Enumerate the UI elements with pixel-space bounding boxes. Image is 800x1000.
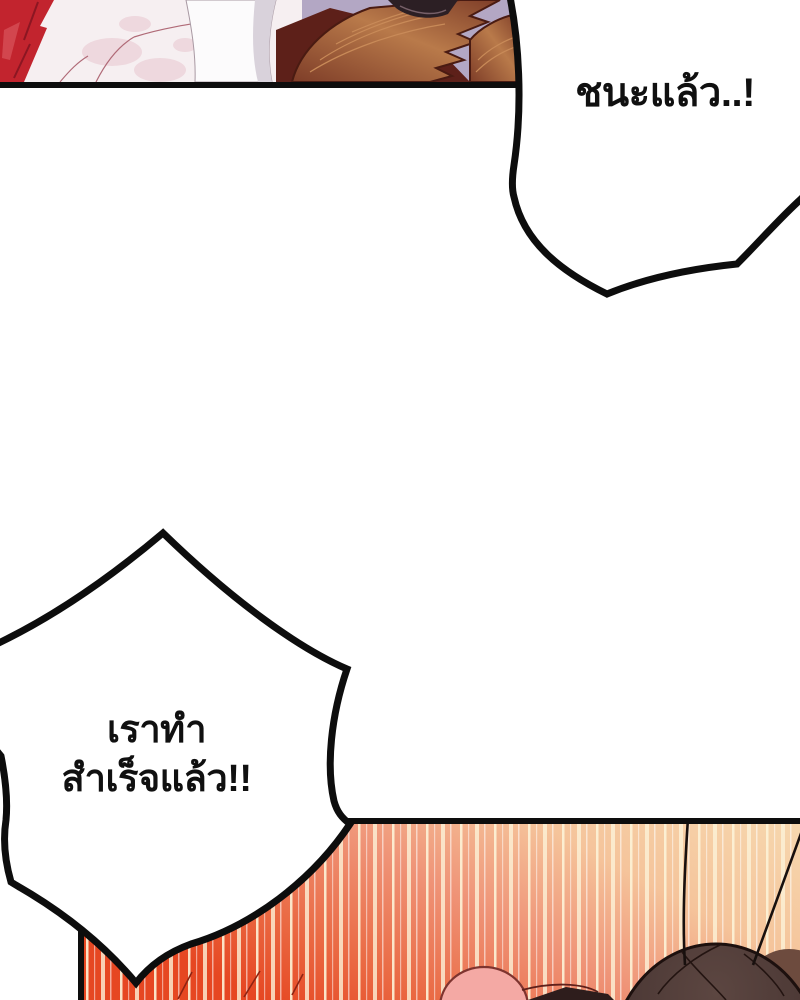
bottom-panel-artwork bbox=[84, 824, 800, 1000]
comic-page: ชนะแล้ว..! เราทำ สำเร็จแล้ว!! bbox=[0, 0, 800, 1000]
success-bubble-line1: เราทำ bbox=[14, 706, 299, 755]
success-bubble-line2: สำเร็จแล้ว!! bbox=[14, 755, 299, 804]
bottom-comic-panel bbox=[78, 818, 800, 1000]
success-bubble-text: เราทำ สำเร็จแล้ว!! bbox=[14, 706, 299, 805]
victory-bubble-text: ชนะแล้ว..! bbox=[540, 70, 790, 116]
